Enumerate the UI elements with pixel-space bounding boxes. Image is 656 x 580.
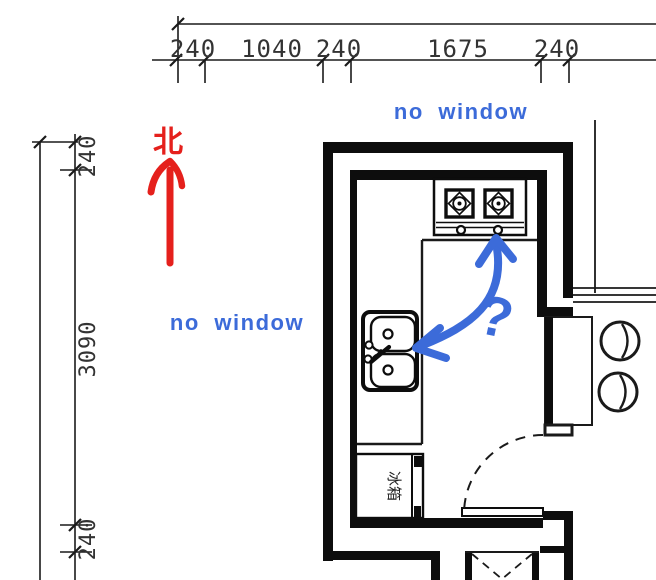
no-window-label-top: no window — [394, 99, 528, 124]
question-mark: ? — [472, 282, 519, 351]
left-dimension-labels: 240 3090 240 — [76, 135, 101, 561]
dim-label: 1040 — [241, 35, 303, 63]
no-window-label-left: no window — [170, 310, 304, 335]
flue-wall-left — [465, 551, 472, 580]
sink-drain — [384, 366, 393, 375]
dim-label: 240 — [76, 135, 101, 178]
fridge-label: 冰箱 — [385, 471, 402, 501]
outer-wall-left — [323, 142, 333, 561]
flue-diagonal — [472, 554, 502, 579]
dim-label: 1675 — [427, 35, 489, 63]
right-side-structure — [545, 120, 656, 435]
flue-diagonal — [502, 554, 532, 579]
sink-drain — [384, 330, 393, 339]
top-dimension-labels: 240 1040 240 1675 240 — [170, 35, 580, 63]
inner-wall-bottom — [350, 518, 543, 528]
flue-shaft — [465, 551, 539, 580]
outer-wall-bottom — [323, 551, 440, 560]
fixture-arc — [622, 324, 628, 358]
outer-wall-bottom-corner — [431, 551, 440, 580]
dim-label: 240 — [170, 35, 216, 63]
fridge-hinge-top — [414, 456, 422, 467]
left-tick-marks — [34, 136, 81, 558]
stove-knob — [457, 226, 465, 234]
round-fixture — [599, 373, 637, 411]
fixture-arc — [620, 375, 626, 409]
flue-wall-right — [532, 551, 539, 580]
faucet-handle — [365, 341, 372, 348]
top-dimension-group — [152, 16, 656, 83]
door-swing-arc — [464, 435, 543, 514]
right-column-wall-face — [545, 317, 553, 425]
top-extension-stubs — [205, 60, 569, 83]
lower-right-wall-stub — [540, 546, 573, 553]
floor-plan-canvas: 240 1040 240 1675 240 240 3090 240 — [0, 0, 656, 580]
door — [462, 435, 543, 516]
north-label: 北 — [153, 126, 183, 159]
floor-plan-drawing: 240 1040 240 1675 240 240 3090 240 — [0, 0, 656, 580]
outer-wall-top — [323, 142, 573, 153]
dim-label: 240 — [76, 518, 101, 561]
north-arrow-head-left — [151, 162, 169, 192]
dim-label: 3090 — [76, 321, 101, 378]
sink — [363, 312, 417, 390]
door-leaf — [462, 508, 543, 516]
north-arrow — [151, 161, 182, 263]
stove — [434, 179, 526, 235]
lower-right-wall — [564, 511, 573, 580]
right-column-foot — [545, 425, 572, 435]
fridge-hinge-bottom — [414, 506, 421, 517]
stove-knob — [494, 226, 502, 234]
round-fixture — [601, 322, 639, 360]
dim-label: 240 — [316, 35, 362, 63]
outer-wall-right — [563, 142, 573, 298]
inner-wall-right — [537, 170, 547, 317]
dim-label: 240 — [534, 35, 580, 63]
